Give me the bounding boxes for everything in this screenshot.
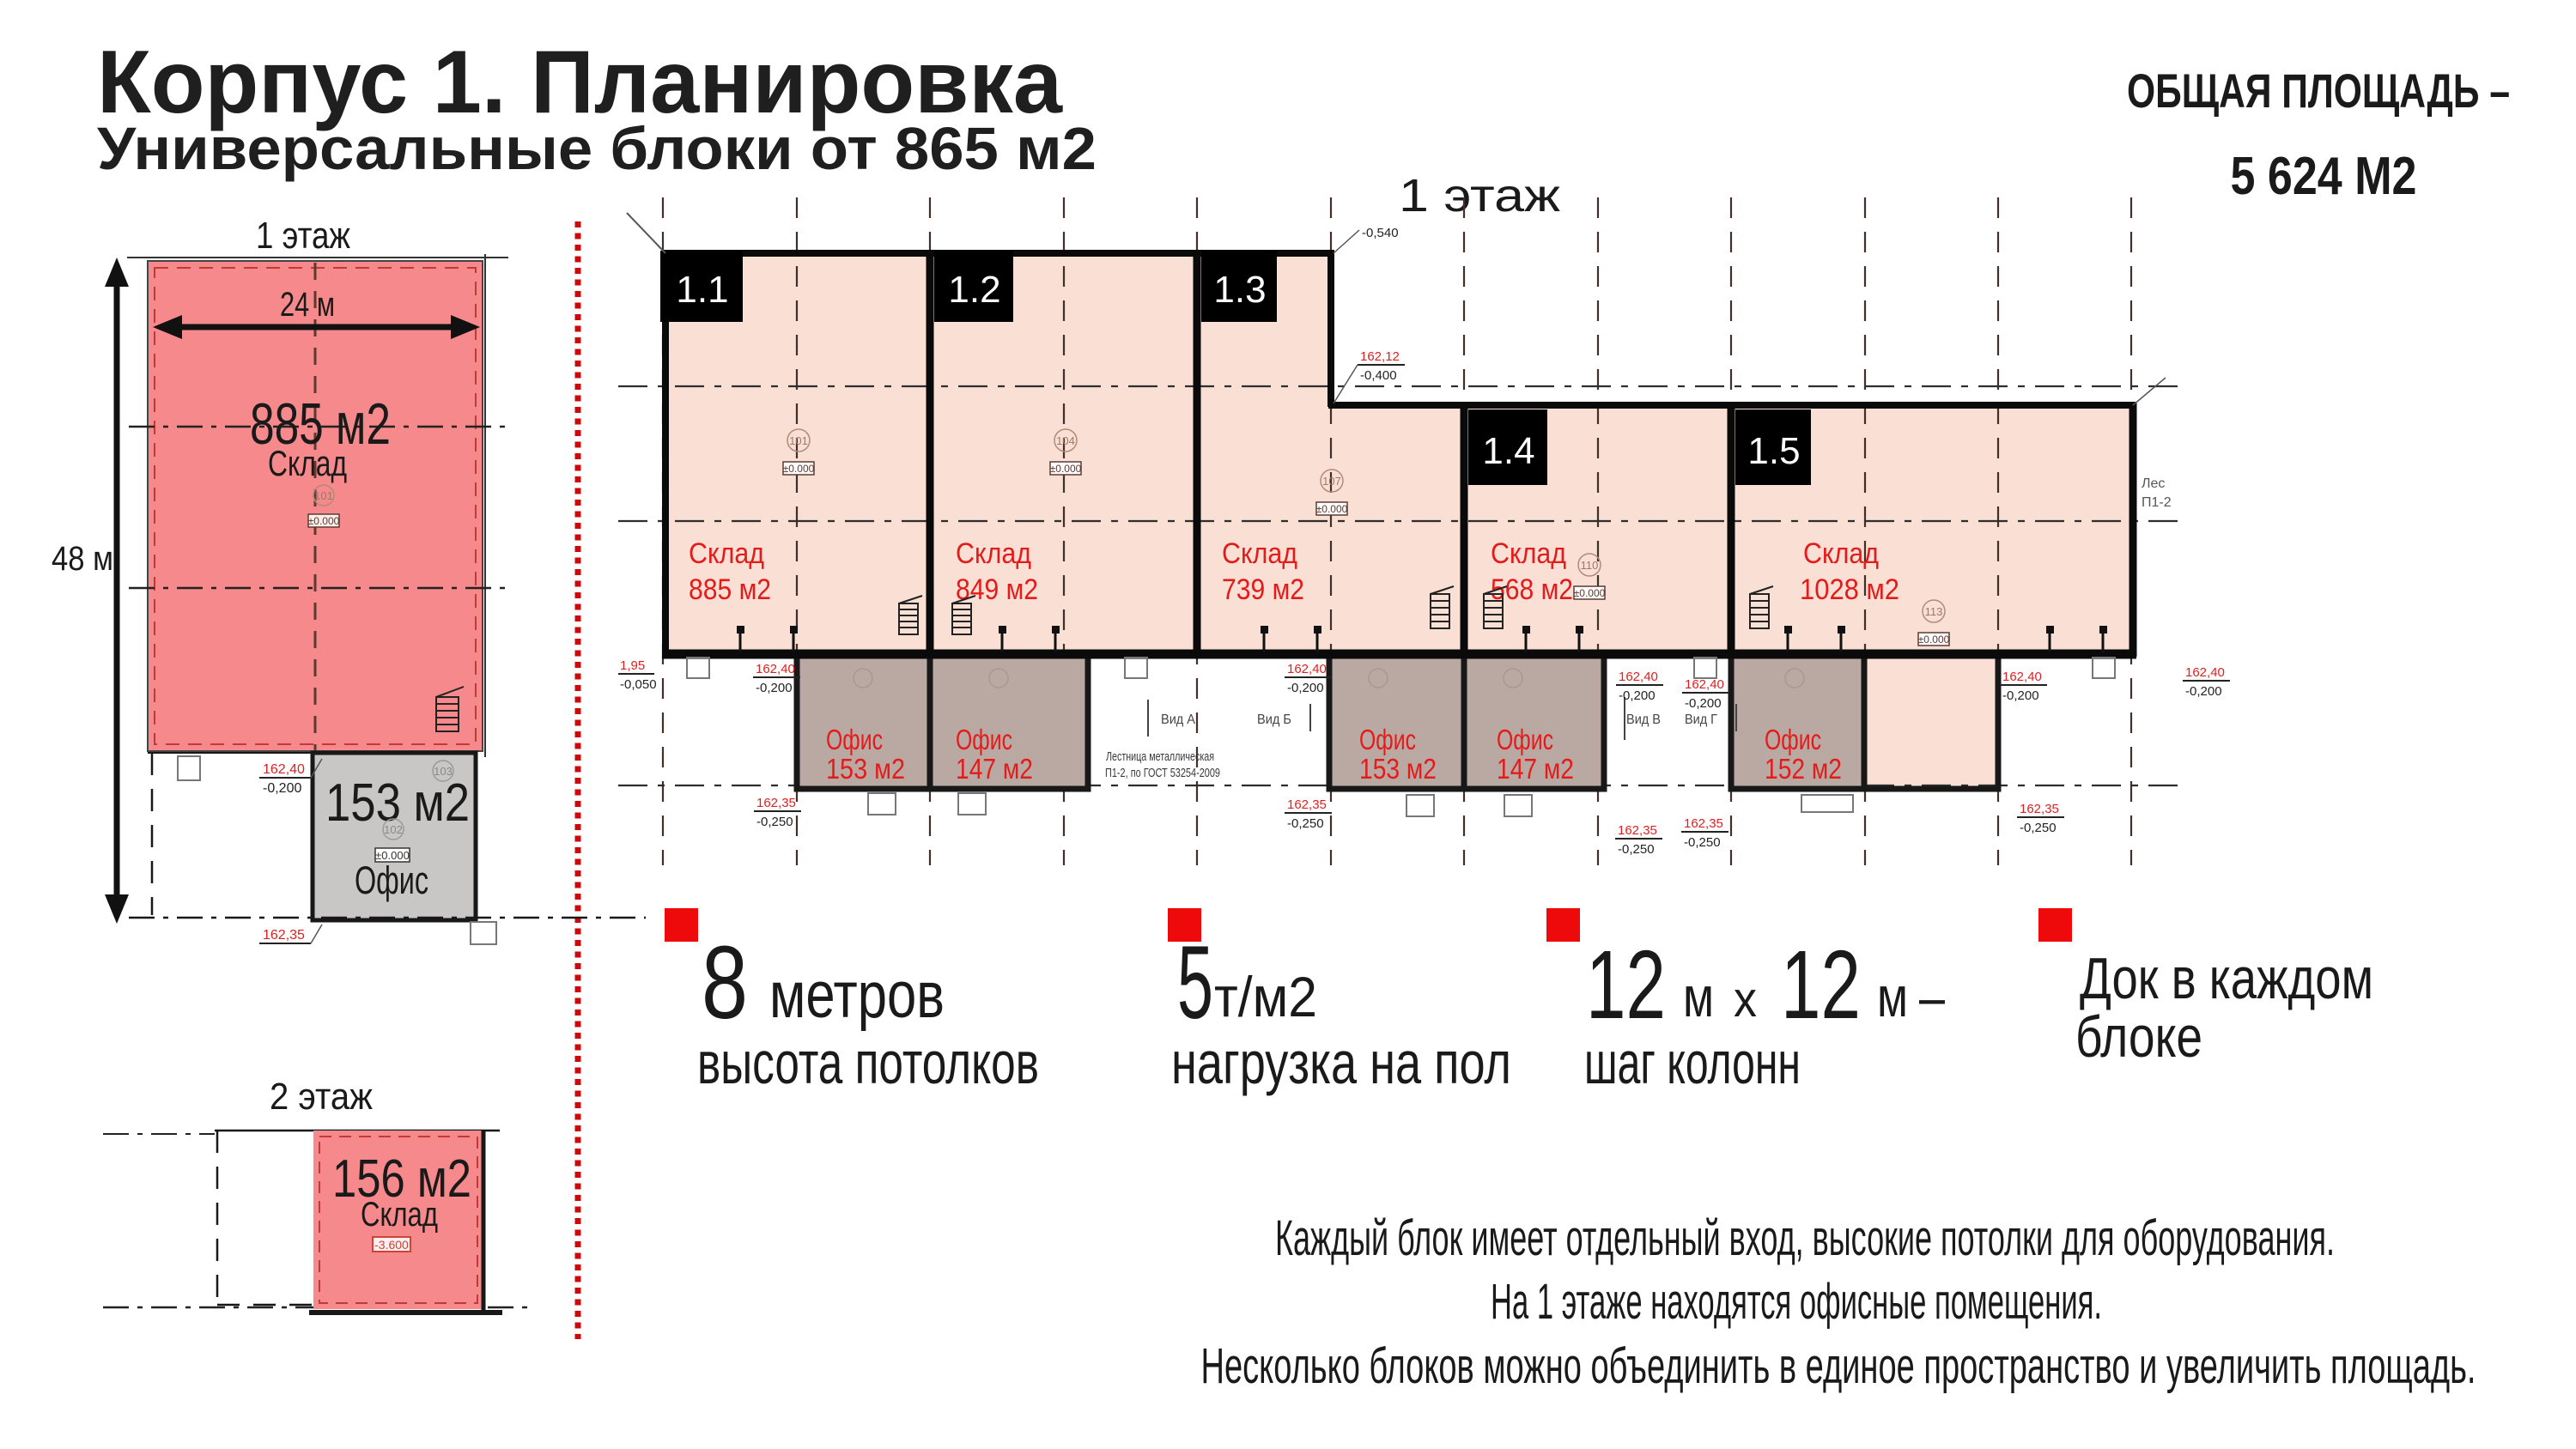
svg-text:162,35: 162,35 (756, 796, 796, 810)
svg-text:±0.000: ±0.000 (783, 463, 815, 475)
svg-text:48 м: 48 м (52, 540, 113, 578)
svg-text:1.1: 1.1 (676, 269, 728, 311)
svg-text:высота потолков: высота потолков (697, 1029, 1039, 1096)
svg-text:152 м2: 152 м2 (1765, 753, 1842, 785)
svg-text:110: 110 (1581, 559, 1599, 572)
svg-text:162,35: 162,35 (263, 928, 305, 943)
svg-text:Склад: Склад (689, 537, 764, 570)
svg-text:П1-2, по ГОСТ 53254-2009: П1-2, по ГОСТ 53254-2009 (1105, 766, 1220, 780)
svg-text:-0,400: -0,400 (1360, 368, 1397, 383)
svg-text:147 м2: 147 м2 (956, 753, 1033, 785)
svg-text:м: м (1877, 965, 1908, 1028)
svg-text:24 м: 24 м (280, 286, 335, 324)
svg-text:1.2: 1.2 (948, 269, 1000, 311)
svg-text:-0,250: -0,250 (2020, 821, 2057, 835)
svg-text:±0.000: ±0.000 (1050, 463, 1082, 475)
svg-text:1 этаж: 1 этаж (256, 215, 350, 257)
svg-text:нагрузка на пол: нагрузка на пол (1171, 1029, 1511, 1096)
svg-text:-0,250: -0,250 (1287, 816, 1324, 831)
svg-text:Несколько блоков можно объедин: Несколько блоков можно объединить в един… (1201, 1338, 2476, 1394)
svg-text:Склад: Склад (361, 1196, 438, 1234)
svg-text:162,35: 162,35 (1618, 823, 1657, 838)
svg-text:±0.000: ±0.000 (1574, 587, 1606, 599)
svg-text:104: 104 (1056, 434, 1075, 447)
svg-text:Универсальные блоки от 865 м2: Универсальные блоки от 865 м2 (97, 115, 1097, 182)
svg-text:162,40: 162,40 (1685, 677, 1724, 692)
svg-text:5: 5 (1177, 924, 1213, 1040)
svg-text:т/м2: т/м2 (1214, 965, 1317, 1028)
svg-text:162,40: 162,40 (756, 662, 795, 676)
svg-text:Вид Б: Вид Б (1257, 712, 1291, 727)
svg-text:113: 113 (1925, 605, 1943, 618)
svg-text:162,40: 162,40 (263, 762, 305, 777)
svg-text:147 м2: 147 м2 (1497, 753, 1574, 785)
svg-text:Склад: Склад (1491, 537, 1566, 570)
svg-text:Каждый блок имеет отдельный вх: Каждый блок имеет отдельный вход, высоки… (1275, 1210, 2335, 1266)
svg-text:Склад: Склад (1803, 537, 1879, 570)
svg-text:107: 107 (1322, 475, 1341, 488)
svg-text:Склад: Склад (1222, 537, 1297, 570)
svg-text:–: – (1919, 965, 1945, 1028)
svg-text:102: 102 (384, 823, 403, 836)
svg-text:1028 м2: 1028 м2 (1800, 573, 1899, 606)
svg-text:-0,250: -0,250 (1618, 842, 1655, 857)
svg-text:1.4: 1.4 (1482, 430, 1534, 472)
svg-text:±0.000: ±0.000 (308, 515, 340, 527)
svg-text:Вид Г: Вид Г (1685, 712, 1717, 727)
svg-text:метров: метров (769, 959, 945, 1032)
svg-text:ОБЩАЯ ПЛОЩАДЬ –: ОБЩАЯ ПЛОЩАДЬ – (2127, 64, 2510, 118)
svg-text:1.5: 1.5 (1747, 430, 1800, 472)
svg-text:Офис: Офис (1765, 724, 1821, 755)
svg-text:101: 101 (789, 434, 808, 447)
svg-text:-0,200: -0,200 (2185, 684, 2222, 699)
svg-text:162,12: 162,12 (1360, 349, 1400, 364)
svg-text:1 этаж: 1 этаж (1399, 170, 1560, 221)
svg-text:Офис: Офис (1497, 724, 1553, 755)
svg-text:Вид В: Вид В (1626, 712, 1661, 727)
svg-text:Офис: Офис (956, 724, 1012, 755)
svg-text:162,40: 162,40 (1619, 670, 1658, 684)
svg-text:849 м2: 849 м2 (956, 573, 1038, 606)
svg-text:±0.000: ±0.000 (1918, 634, 1950, 646)
svg-text:м: м (1683, 965, 1714, 1028)
svg-text:Офис: Офис (826, 724, 883, 755)
svg-text:-0,540: -0,540 (1362, 226, 1399, 240)
svg-text:162,35: 162,35 (2020, 802, 2059, 816)
svg-text:-3.600: -3.600 (374, 1238, 409, 1252)
svg-text:шаг колонн: шаг колонн (1584, 1029, 1801, 1096)
svg-text:Склад: Склад (268, 443, 347, 483)
svg-text:-0,200: -0,200 (1287, 681, 1324, 695)
svg-text:-0,050: -0,050 (620, 677, 657, 692)
svg-text:8: 8 (702, 924, 748, 1040)
svg-text:блоке: блоке (2075, 1004, 2202, 1070)
svg-text:Лес: Лес (2142, 476, 2165, 491)
svg-text:-0,250: -0,250 (1684, 835, 1721, 850)
svg-text:1.3: 1.3 (1213, 269, 1266, 311)
svg-text:162,40: 162,40 (2185, 665, 2225, 680)
svg-text:х: х (1734, 972, 1757, 1028)
svg-text:-0,200: -0,200 (1619, 688, 1656, 703)
svg-text:162,35: 162,35 (1287, 797, 1327, 812)
svg-text:Док в каждом: Док в каждом (2080, 946, 2373, 1011)
svg-text:Лестница металлическая: Лестница металлическая (1106, 749, 1214, 764)
svg-text:Склад: Склад (956, 537, 1031, 570)
svg-text:162,40: 162,40 (1287, 662, 1327, 676)
svg-text:-0,200: -0,200 (2002, 688, 2039, 703)
svg-text:На 1 этаже находятся офисные п: На 1 этаже находятся офисные помещения. (1491, 1274, 2102, 1330)
svg-text:162,40: 162,40 (2002, 670, 2042, 684)
svg-text:1,95: 1,95 (620, 658, 645, 673)
svg-text:12: 12 (1586, 931, 1666, 1039)
svg-text:Офис: Офис (1359, 724, 1416, 755)
svg-text:П1-2: П1-2 (2142, 495, 2172, 510)
svg-text:739 м2: 739 м2 (1222, 573, 1304, 606)
svg-text:-0,200: -0,200 (263, 781, 301, 796)
svg-text:153 м2: 153 м2 (1359, 753, 1437, 785)
svg-text:-0,200: -0,200 (756, 681, 793, 695)
svg-text:12: 12 (1781, 931, 1861, 1039)
svg-text:Офис: Офис (355, 858, 428, 902)
svg-text:Вид А: Вид А (1161, 712, 1195, 727)
svg-text:885 м2: 885 м2 (689, 573, 771, 606)
svg-text:162,35: 162,35 (1684, 816, 1723, 831)
svg-text:2 этаж: 2 этаж (270, 1076, 374, 1118)
svg-text:-0,250: -0,250 (756, 815, 793, 829)
svg-text:±0.000: ±0.000 (1316, 503, 1348, 515)
svg-text:-0,200: -0,200 (1685, 696, 1722, 711)
svg-text:5 624 М2: 5 624 М2 (2231, 147, 2417, 206)
svg-text:153 м2: 153 м2 (826, 753, 905, 785)
svg-text:103: 103 (434, 765, 453, 778)
svg-text:101: 101 (314, 489, 333, 502)
